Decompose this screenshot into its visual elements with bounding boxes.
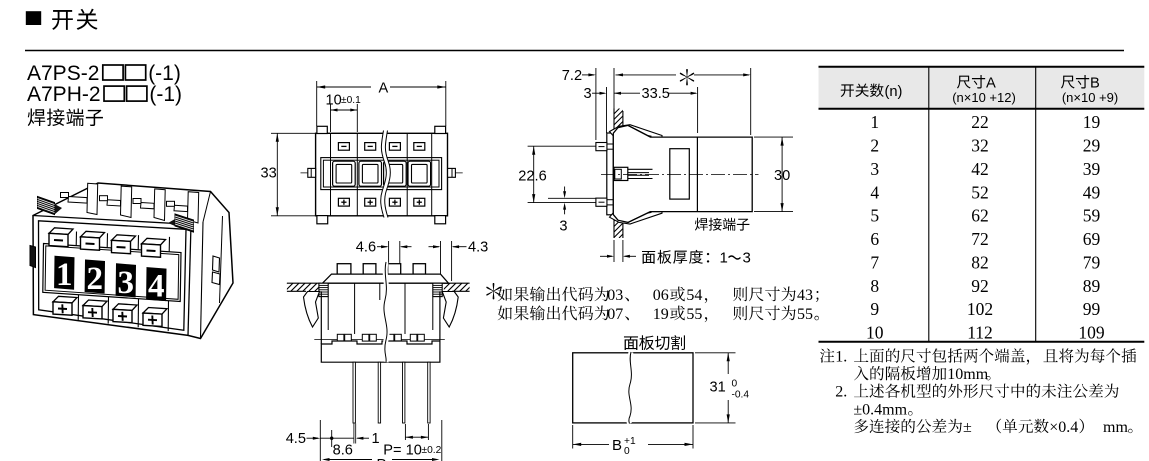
svg-text:±0.1: ±0.1 bbox=[341, 95, 361, 106]
svg-text:54: 54 bbox=[686, 287, 702, 304]
svg-text:0: 0 bbox=[732, 379, 738, 390]
svg-text:30: 30 bbox=[774, 168, 790, 184]
svg-text:06: 06 bbox=[653, 287, 669, 304]
svg-text:19: 19 bbox=[1083, 112, 1101, 132]
svg-text:59: 59 bbox=[1083, 206, 1101, 226]
svg-text:62: 62 bbox=[971, 206, 989, 226]
svg-text:102: 102 bbox=[967, 299, 993, 319]
svg-text:2: 2 bbox=[870, 136, 879, 156]
svg-text:(-1): (-1) bbox=[148, 62, 181, 85]
svg-text:(n): (n) bbox=[885, 84, 903, 100]
svg-text:A: A bbox=[379, 80, 389, 96]
svg-text:31: 31 bbox=[710, 380, 726, 396]
svg-text:0: 0 bbox=[624, 446, 630, 457]
svg-text:3: 3 bbox=[559, 219, 567, 235]
svg-text:33: 33 bbox=[261, 166, 277, 182]
svg-text:10mm: 10mm bbox=[947, 366, 988, 383]
svg-text:3: 3 bbox=[584, 86, 592, 102]
svg-text:mm: mm bbox=[1103, 419, 1128, 436]
svg-text:4.6: 4.6 bbox=[356, 239, 376, 255]
svg-text:±: ± bbox=[963, 419, 972, 436]
svg-text:9: 9 bbox=[870, 299, 879, 319]
svg-text:99: 99 bbox=[1083, 299, 1101, 319]
svg-text:03: 03 bbox=[607, 287, 623, 304]
svg-text:±0.4mm: ±0.4mm bbox=[853, 401, 907, 418]
svg-text:3: 3 bbox=[870, 159, 879, 179]
svg-text:A7PH-2: A7PH-2 bbox=[27, 83, 101, 106]
svg-text:22.6: 22.6 bbox=[518, 169, 546, 185]
svg-text:4.5: 4.5 bbox=[286, 431, 306, 447]
svg-text:-0.4: -0.4 bbox=[732, 390, 750, 401]
svg-text:109: 109 bbox=[1078, 323, 1105, 343]
svg-text:10: 10 bbox=[326, 93, 342, 109]
svg-text:4: 4 bbox=[870, 182, 879, 202]
svg-text:1: 1 bbox=[870, 112, 879, 132]
svg-text:42: 42 bbox=[971, 159, 989, 179]
svg-text:39: 39 bbox=[1083, 159, 1101, 179]
svg-text:10: 10 bbox=[866, 323, 884, 343]
svg-text:7.2: 7.2 bbox=[562, 68, 582, 84]
svg-text:B: B bbox=[612, 437, 622, 454]
svg-text:×0.4: ×0.4 bbox=[1049, 419, 1078, 436]
svg-text:19: 19 bbox=[653, 306, 669, 323]
svg-text:3: 3 bbox=[118, 265, 135, 301]
svg-text:49: 49 bbox=[1083, 182, 1101, 202]
svg-text:22: 22 bbox=[971, 112, 989, 132]
svg-text:3: 3 bbox=[743, 250, 751, 267]
svg-text:1.: 1. bbox=[835, 349, 847, 366]
svg-text:2: 2 bbox=[87, 261, 104, 297]
svg-text:P= 10: P= 10 bbox=[383, 443, 422, 459]
svg-text:P: P bbox=[377, 457, 387, 461]
svg-text:8: 8 bbox=[870, 276, 879, 296]
svg-text:5: 5 bbox=[870, 206, 879, 226]
svg-text:52: 52 bbox=[971, 182, 989, 202]
svg-text:1: 1 bbox=[56, 257, 73, 293]
svg-text:6: 6 bbox=[870, 229, 879, 249]
svg-text:33.5: 33.5 bbox=[642, 86, 670, 102]
svg-text:2.: 2. bbox=[835, 384, 847, 401]
svg-text:43: 43 bbox=[797, 287, 813, 304]
svg-text:55: 55 bbox=[686, 306, 702, 323]
svg-text:07: 07 bbox=[607, 306, 623, 323]
svg-text:82: 82 bbox=[971, 252, 989, 272]
svg-text:A7PS-2: A7PS-2 bbox=[27, 62, 99, 85]
svg-text:1: 1 bbox=[372, 431, 380, 447]
svg-text:(n×10 +12): (n×10 +12) bbox=[952, 90, 1016, 105]
svg-text:1: 1 bbox=[720, 250, 728, 267]
svg-text:79: 79 bbox=[1083, 252, 1101, 272]
svg-text:8.6: 8.6 bbox=[333, 443, 353, 459]
svg-text:±0.2: ±0.2 bbox=[422, 445, 442, 456]
svg-text:32: 32 bbox=[971, 136, 989, 156]
svg-text:89: 89 bbox=[1083, 276, 1101, 296]
svg-text:92: 92 bbox=[971, 276, 989, 296]
svg-text:69: 69 bbox=[1083, 229, 1101, 249]
svg-text:112: 112 bbox=[967, 323, 993, 343]
svg-text:72: 72 bbox=[971, 229, 989, 249]
svg-text:29: 29 bbox=[1083, 136, 1101, 156]
svg-text:55: 55 bbox=[797, 306, 813, 323]
svg-text:(n×10 +9): (n×10 +9) bbox=[1062, 90, 1118, 105]
svg-text:(-1): (-1) bbox=[149, 83, 182, 106]
svg-text:4.3: 4.3 bbox=[468, 239, 488, 255]
svg-text:4: 4 bbox=[148, 269, 165, 305]
svg-text:7: 7 bbox=[870, 252, 879, 272]
